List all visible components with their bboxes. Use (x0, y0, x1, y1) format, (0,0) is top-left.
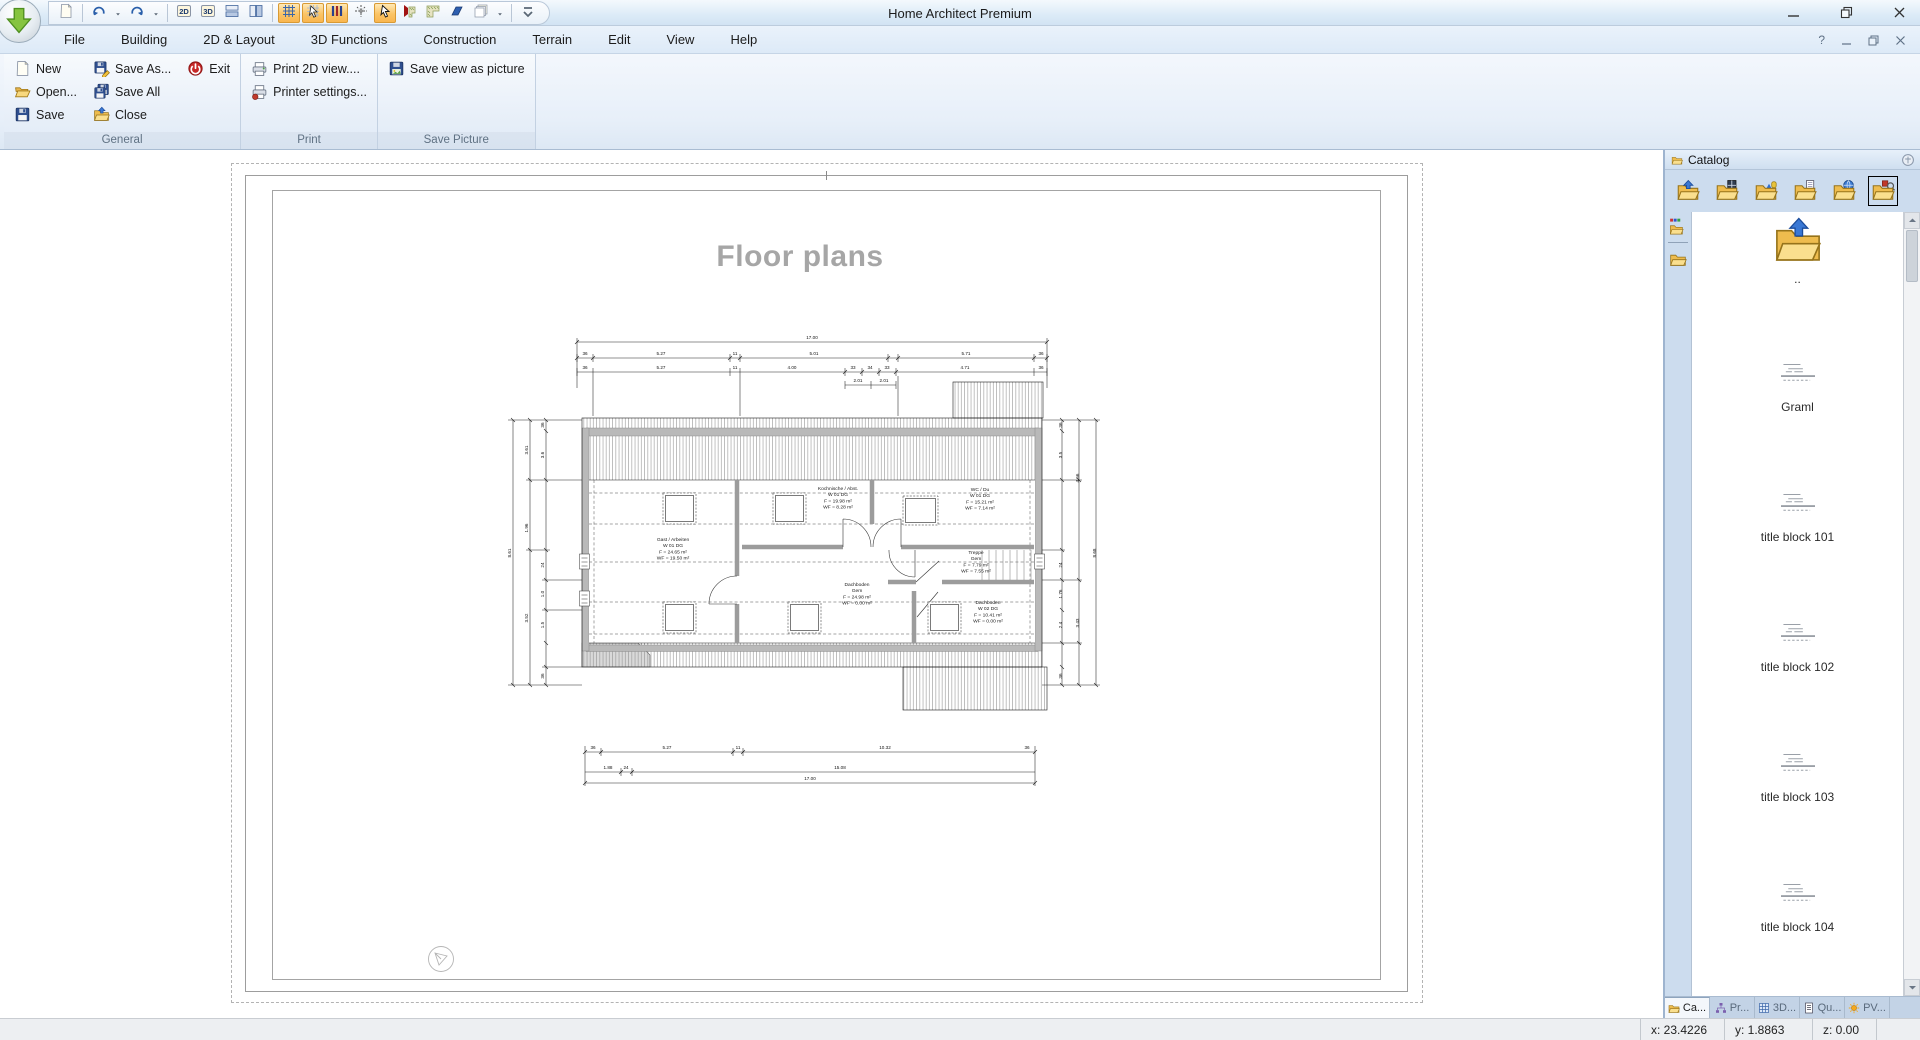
dim-label: 1.96 (524, 523, 529, 532)
dim-label: 5.27 (657, 351, 666, 356)
room-wc-label: W 01 DG (970, 493, 990, 499)
tab-3d-label: 3D... (1773, 1002, 1796, 1014)
menu-terrain[interactable]: Terrain (514, 26, 590, 54)
dim-label: 36 (1038, 351, 1044, 356)
tab-catalog-label: Ca... (1683, 1002, 1706, 1014)
chevmore-icon (520, 3, 536, 24)
catalog-up-button[interactable] (1673, 176, 1703, 206)
ribbon-group-general: NewOpen...SaveSave As...Save AllCloseExi… (4, 54, 241, 149)
catalog-item-parent[interactable]: .. (1692, 212, 1903, 342)
ribbon-group-label: Print (241, 132, 377, 149)
page-small-icon (58, 3, 74, 24)
floppy-pencil-icon (93, 60, 110, 77)
caret-icon (153, 4, 159, 22)
printer-icon (251, 60, 268, 77)
new-button[interactable]: New (8, 57, 83, 80)
columns-icon (329, 3, 345, 24)
save-button[interactable]: Save (8, 103, 83, 126)
dim-label: 3.61 (524, 445, 529, 454)
para-blue-icon (449, 3, 465, 24)
split-h-icon (224, 3, 240, 24)
catalog-windows-button[interactable] (1712, 176, 1742, 206)
sheet-title: Floor plans (650, 240, 950, 274)
dim-label: 36 (582, 365, 588, 370)
room-kochnische-label: F = 19.98 m² (824, 498, 852, 504)
save-view-as-picture-button-label: Save view as picture (410, 62, 525, 76)
pointer-grid-icon (305, 3, 321, 24)
help-button[interactable]: ? (1818, 33, 1825, 47)
close-button[interactable] (1884, 3, 1914, 21)
tab-quantities[interactable]: Qu... (1800, 997, 1845, 1018)
floppy-icon (14, 106, 31, 123)
dim-label: 10.32 (879, 745, 891, 750)
dim-label: 1.76 (1058, 589, 1063, 598)
toolbar-separator (272, 4, 273, 22)
room-treppe-label: WF = 7.55 m² (961, 569, 991, 575)
svg-text:3D: 3D (203, 7, 213, 16)
tab-sun-icon (1848, 1002, 1860, 1014)
dim-label: 5.71 (962, 351, 971, 356)
dim-label: 5.01 (810, 351, 819, 356)
dim-label: 2.01 (880, 378, 889, 383)
catalog-templates-button[interactable] (1790, 176, 1820, 206)
restore-icon (1840, 6, 1853, 19)
room-dachboden-gem-label: Gem (852, 588, 863, 594)
crosshair-button[interactable] (350, 3, 372, 23)
catalog-title: Catalog (1688, 153, 1729, 167)
cat-globe-icon (1832, 190, 1856, 207)
room-treppe-label: F = 7.79 m² (963, 562, 989, 568)
rail-plain-icon (1668, 254, 1688, 271)
coordinate-x: x: 23.4226 (1640, 1019, 1724, 1040)
room-treppe-label: Gem (971, 556, 982, 562)
menu-edit[interactable]: Edit (590, 26, 648, 54)
catalog-item-graml[interactable]: Graml (1692, 342, 1903, 472)
save-view-as-picture-button[interactable]: Save view as picture (382, 57, 531, 80)
page-center-mark (826, 171, 827, 180)
corner-green-icon (425, 3, 441, 24)
rail-divider (1668, 242, 1688, 243)
dim-label: 3.52 (524, 613, 529, 622)
print-2d-view-button[interactable]: Print 2D view.... (245, 57, 373, 80)
roof-plane-button[interactable] (446, 3, 468, 23)
tab-project-label: Pr... (1730, 1002, 1750, 1014)
dim-label: 36 (540, 673, 545, 679)
app-logo-button[interactable] (0, 0, 41, 43)
dim-label: 11 (733, 351, 738, 356)
toolbar-separator (167, 4, 168, 22)
catalog-item-title-block-103-label: title block 103 (1761, 790, 1834, 804)
catalog-item-title-block-101-label: title block 101 (1761, 530, 1834, 544)
printer-settings-button-label: Printer settings... (273, 85, 367, 99)
ribbon-group-label: General (4, 132, 240, 149)
catalog-objects-button[interactable] (1751, 176, 1781, 206)
dim-label: 3.5 (1058, 451, 1063, 458)
ribbon-group-save-picture: Save view as pictureSave Picture (378, 54, 536, 149)
layers-menu-button[interactable] (494, 3, 506, 23)
close-button-label: Close (115, 108, 147, 122)
ribbon-group-label: Save Picture (378, 132, 535, 149)
catalog-tabs: Ca...Pr...3D...Qu...PV... (1665, 996, 1920, 1018)
catalog-item-title-block-101[interactable]: title block 101 (1692, 472, 1903, 602)
room-kochnische-label: Kochnische / Abst. (818, 486, 858, 492)
dim-label: 8.61 (507, 548, 512, 557)
app-window: 2D3D Home Architect Premium FileBuilding… (0, 0, 1920, 1040)
snap-select-button[interactable] (302, 3, 324, 23)
split-v-icon (248, 3, 264, 24)
menu-view[interactable]: View (649, 26, 713, 54)
roof-corner-green-button[interactable] (422, 3, 444, 23)
dim-label: 8.68 (1092, 548, 1097, 557)
tab-3d[interactable]: 3D... (1755, 997, 1800, 1018)
crosshair-icon (353, 3, 369, 24)
cat-window-icon (1715, 190, 1739, 207)
north-arrow-symbol (424, 942, 458, 976)
dim-label: 36 (540, 422, 545, 428)
b3d-icon: 3D (200, 3, 216, 24)
catalog-item-title-block-103[interactable]: title block 103 (1692, 732, 1903, 862)
catalog-item-title-block-102[interactable]: title block 102 (1692, 602, 1903, 732)
caret-icon (115, 4, 121, 22)
catalog-item-graml-label: Graml (1781, 400, 1814, 414)
catalog-folder-icon (1670, 154, 1684, 166)
layers-icon (473, 3, 489, 24)
cat-doc-icon (1793, 190, 1817, 207)
exit-button[interactable]: Exit (181, 57, 236, 80)
catalog-panel: Catalog ..Gramltitle block 101title bloc… (1665, 150, 1920, 1018)
scroll-down-icon (1908, 983, 1917, 992)
tab-pv[interactable]: PV... (1845, 997, 1890, 1018)
save-as-button[interactable]: Save As... (87, 57, 177, 80)
mdi-controls: ? (1818, 26, 1906, 54)
dim-label: 3.43 (1075, 618, 1080, 627)
tab-folder-icon (1668, 1002, 1680, 1014)
dim-label: 36 (590, 745, 596, 750)
dim-label: 36 (1058, 673, 1063, 679)
room-dachboden-w02-label: F = 10.41 m² (974, 612, 1002, 618)
room-dachboden-w02-label: WF = 0.00 m² (973, 619, 1003, 625)
pointer-button[interactable] (374, 3, 396, 23)
cat-search-icon (1871, 190, 1895, 207)
undo-menu-button[interactable] (112, 3, 124, 23)
pin-icon[interactable] (1901, 153, 1915, 167)
tab-catalog[interactable]: Ca... (1665, 997, 1710, 1018)
dim-label: 1.0 (540, 590, 545, 597)
menu-help[interactable]: Help (712, 26, 775, 54)
grid-toggle-button[interactable] (278, 3, 300, 23)
redo-icon (129, 3, 145, 24)
room-dachboden-gem-label: Dachboden (844, 582, 869, 588)
room-gast-label: W 01 DG (663, 543, 683, 549)
split-horizontal-button[interactable] (221, 3, 243, 23)
dim-label: 15.08 (834, 765, 846, 770)
dim-label: 1.88 (604, 765, 613, 770)
catalog-rail (1665, 212, 1691, 996)
menu-3d-functions[interactable]: 3D Functions (293, 26, 406, 54)
room-wc-label: F = 15.21 m² (966, 499, 994, 505)
catalog-scrollbar[interactable] (1903, 212, 1920, 996)
new-drawing-button[interactable] (55, 3, 77, 23)
page-new-icon (14, 60, 31, 77)
title-bar: 2D3D Home Architect Premium (0, 0, 1920, 26)
tab-doc-icon (1803, 1002, 1815, 1014)
dim-label: 17.00 (806, 335, 818, 340)
split-vertical-button[interactable] (245, 3, 267, 23)
dim-label: 4.56 (1075, 473, 1080, 482)
catalog-toolbar (1665, 170, 1920, 212)
rail-folder-button[interactable] (1668, 249, 1688, 267)
undo-icon (91, 3, 107, 24)
menu-file[interactable]: File (46, 26, 103, 54)
dim-label: 24 (540, 562, 545, 568)
floppy-picture-icon (388, 60, 405, 77)
dim-label: 2.01 (854, 378, 863, 383)
rail-colors-icon (1668, 223, 1688, 240)
save-all-button-label: Save All (115, 85, 160, 99)
floor-plan-drawing[interactable]: 17.00365.27115.015.7136365.27114.0033343… (490, 328, 1140, 798)
menu-construction[interactable]: Construction (405, 26, 514, 54)
ribbon-group-print: Print 2D view....Printer settings...Prin… (241, 54, 378, 149)
scroll-thumb[interactable] (1906, 230, 1918, 282)
toolbar-separator (82, 4, 83, 22)
menu-bar: FileBuilding2D & Layout3D FunctionsConst… (0, 26, 1920, 54)
tab-project[interactable]: Pr... (1710, 997, 1755, 1018)
folder-open-icon (14, 83, 31, 100)
dim-label: 24 (1058, 562, 1063, 568)
dim-label: 33 (850, 365, 856, 370)
room-kochnische-label: W 01 DG (828, 492, 848, 498)
roof-corner-red-button[interactable] (398, 3, 420, 23)
ribbon: NewOpen...SaveSave As...Save AllCloseExi… (0, 54, 1920, 150)
drawing-canvas[interactable]: Floor plans (0, 150, 1663, 1018)
mdi-close-button[interactable] (1895, 35, 1906, 46)
minimize-icon (1787, 6, 1800, 19)
room-dachboden-gem-label: F = 24.98 m² (843, 594, 871, 600)
dim-label: 11 (736, 745, 741, 750)
tab-pv-label: PV... (1863, 1002, 1886, 1014)
dim-label: 2.4 (1058, 621, 1063, 628)
close-icon (1893, 6, 1906, 19)
b2d-icon: 2D (176, 3, 192, 24)
catalog-search-button[interactable] (1868, 176, 1898, 206)
dim-label: 36 (1024, 745, 1030, 750)
dim-label: 36 (1038, 365, 1044, 370)
room-wc-label: WF = 7.14 m² (965, 506, 995, 512)
scroll-up-icon (1908, 216, 1917, 225)
redo-menu-button[interactable] (150, 3, 162, 23)
item-preview-sketch (1766, 876, 1830, 910)
folder-close-icon (93, 106, 110, 123)
mdi-minimize-button[interactable] (1841, 35, 1852, 46)
tab-quantities-label: Qu... (1818, 1002, 1842, 1014)
exit-button-label: Exit (209, 62, 230, 76)
dim-label: 36 (1058, 422, 1063, 428)
coordinate-y: y: 1.8863 (1724, 1019, 1812, 1040)
room-wc-label: WC / Du (971, 487, 990, 493)
app-logo-icon (0, 0, 40, 42)
open-button-label: Open... (36, 85, 77, 99)
view-3d-button[interactable]: 3D (197, 3, 219, 23)
folder-up-icon (1771, 216, 1825, 268)
catalog-item-parent-label: .. (1794, 272, 1801, 286)
save-all-button[interactable]: Save All (87, 80, 177, 103)
pointer-icon (377, 3, 393, 24)
room-dachboden-gem-label: WF = 0.00 m² (842, 601, 872, 607)
print-2d-view-button-label: Print 2D view.... (273, 62, 360, 76)
printer-settings-button[interactable]: Printer settings... (245, 80, 373, 103)
menu-building[interactable]: Building (103, 26, 185, 54)
dim-label: 1.5 (540, 621, 545, 628)
room-dachboden-w02-label: Dachboden (975, 600, 1000, 606)
dim-label: 17.00 (804, 776, 816, 781)
dim-label: 5.27 (663, 745, 672, 750)
rail-groups-button[interactable] (1668, 218, 1688, 236)
room-kochnische-label: WF = 8.28 m² (823, 505, 853, 511)
cat-3d-icon (1754, 190, 1778, 207)
scroll-up-button[interactable] (1904, 212, 1920, 229)
scroll-down-button[interactable] (1904, 979, 1920, 996)
power-icon (187, 60, 204, 77)
tab-sitemap-icon (1715, 1002, 1727, 1014)
dim-label: 36 (582, 351, 588, 356)
dim-label: 3.6 (540, 451, 545, 458)
close-button[interactable]: Close (87, 103, 177, 126)
svg-text:2D: 2D (179, 7, 189, 16)
catalog-item-title-block-102-label: title block 102 (1761, 660, 1834, 674)
restore-button[interactable] (1831, 3, 1861, 21)
room-gast-label: F = 24.65 m² (659, 549, 687, 555)
catalog-list: ..Gramltitle block 101title block 102tit… (1691, 212, 1903, 996)
catalog-item-title-block-104[interactable]: title block 104 (1692, 862, 1903, 992)
dim-label: 4.71 (961, 365, 970, 370)
menu-2d-layout[interactable]: 2D & Layout (185, 26, 293, 54)
save-as-button-label: Save As... (115, 62, 171, 76)
coordinate-z: z: 0.00 (1812, 1019, 1876, 1040)
guides-toggle-button[interactable] (326, 3, 348, 23)
new-button-label: New (36, 62, 61, 76)
catalog-item-title-block-104-label: title block 104 (1761, 920, 1834, 934)
catalog-web-button[interactable] (1829, 176, 1859, 206)
item-preview-sketch (1766, 486, 1830, 520)
tab-grid-icon (1758, 1002, 1770, 1014)
printer-settings-icon (251, 83, 268, 100)
toolbar-separator (511, 4, 512, 22)
item-preview-sketch (1766, 746, 1830, 780)
view-2d-button[interactable]: 2D (173, 3, 195, 23)
status-bar: x: 23.4226 y: 1.8863 z: 0.00 (0, 1018, 1920, 1040)
dim-label: 33 (884, 365, 890, 370)
room-gast-label: WF = 19.50 m² (657, 556, 690, 562)
dim-label: 24 (623, 765, 629, 770)
quick-access-toolbar: 2D3D (48, 1, 550, 25)
minimize-button[interactable] (1778, 3, 1808, 21)
dim-label: 4.00 (788, 365, 797, 370)
redo-button[interactable] (126, 3, 148, 23)
save-button-label: Save (36, 108, 65, 122)
corner-red-icon (401, 3, 417, 24)
item-preview-sketch (1766, 616, 1830, 650)
floppy-all-icon (93, 83, 110, 100)
item-preview-sketch (1766, 356, 1830, 390)
mdi-restore-button[interactable] (1868, 35, 1879, 46)
room-dachboden-w02-label: W 02 DG (978, 606, 998, 612)
undo-button[interactable] (88, 3, 110, 23)
grid-icon (281, 3, 297, 24)
layers-button[interactable] (470, 3, 492, 23)
room-gast-label: Gast / Arbeiten (657, 537, 690, 543)
dim-label: 5.27 (657, 365, 666, 370)
cat-up-icon (1676, 190, 1700, 207)
dim-label: 11 (733, 365, 738, 370)
caret-icon (497, 4, 503, 22)
dim-label: 34 (867, 365, 873, 370)
room-treppe-label: Treppe (968, 550, 984, 556)
toolbar-overflow-button[interactable] (517, 3, 539, 23)
open-button[interactable]: Open... (8, 80, 83, 103)
